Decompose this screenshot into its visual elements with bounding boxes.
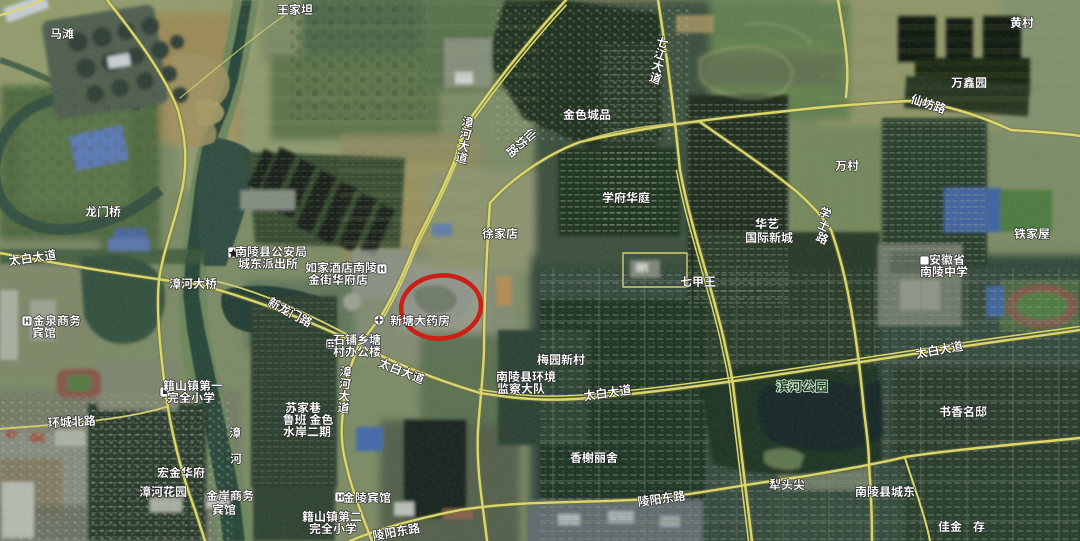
svg-text:H: H [24,317,30,326]
svg-text:H: H [379,265,385,274]
svg-text:H: H [337,493,343,502]
